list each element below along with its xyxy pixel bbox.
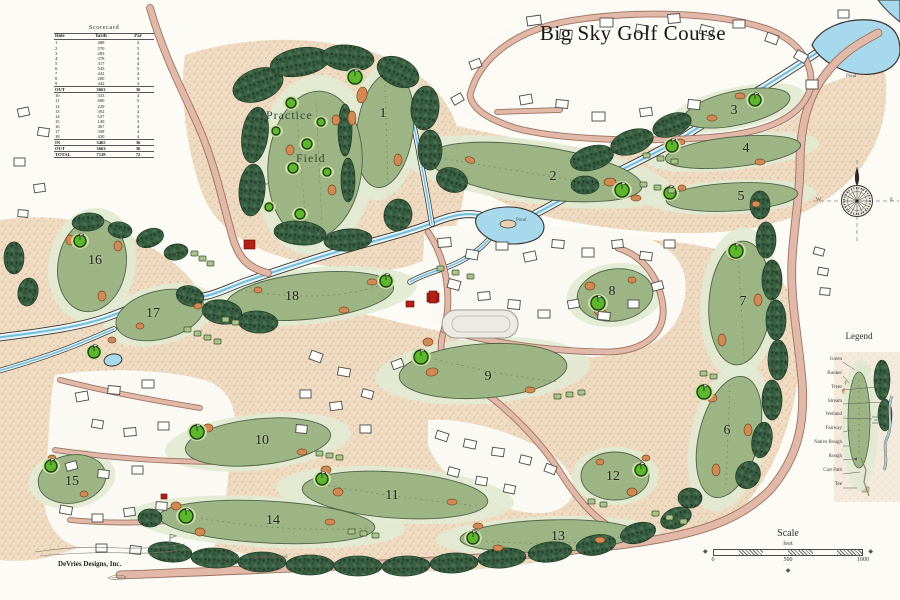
bunker <box>108 337 116 343</box>
scorecard-table: Hole Yards Par 1 488 4 2 570 5 3 283 3 4… <box>54 33 154 158</box>
tee-box <box>214 339 221 344</box>
green <box>317 118 325 126</box>
bunker <box>707 115 717 121</box>
tee-box <box>316 451 323 456</box>
bunker <box>171 502 181 510</box>
house <box>820 288 831 296</box>
tee-box <box>191 251 198 256</box>
house <box>330 401 343 411</box>
compass-east-label: E <box>890 197 893 203</box>
legend-item-label: Trees <box>756 385 842 399</box>
tee-box <box>194 331 201 336</box>
bunker <box>195 528 205 536</box>
house <box>33 183 45 192</box>
tee-box <box>207 261 214 266</box>
scorecard-row: TOTAL 7128 72 <box>54 152 154 158</box>
bunker <box>339 307 349 313</box>
golf-course-map-page: Big Sky Golf Course Scorecard Hole Yards… <box>0 0 900 600</box>
house <box>360 425 371 433</box>
house <box>300 390 311 398</box>
house <box>158 422 169 430</box>
tee-box <box>326 453 333 458</box>
legend-items: Green Bunker Trees Stream Wetland Fairwa… <box>756 357 842 495</box>
tee-box <box>452 270 459 275</box>
bunker <box>752 201 760 207</box>
house <box>132 466 143 474</box>
tee-box <box>566 392 573 397</box>
pond-label-top-right: Pond <box>846 74 856 79</box>
house <box>552 239 565 248</box>
pond-center-island <box>500 220 516 228</box>
bunker <box>194 303 202 309</box>
tee-box <box>467 274 474 279</box>
scale-ornament-icon: ◆ <box>700 567 876 574</box>
clubhouse-building <box>406 301 414 307</box>
house <box>14 158 25 166</box>
house <box>519 94 532 105</box>
legend-item-label: Rough <box>756 454 842 468</box>
tree-cluster <box>341 158 355 202</box>
house <box>75 391 88 402</box>
scale-finial-left-icon: ◆ <box>703 549 708 556</box>
tee-box <box>336 455 343 460</box>
house <box>556 99 569 108</box>
green <box>302 139 312 149</box>
bunker <box>328 185 336 195</box>
house <box>582 248 594 257</box>
scale-tick-label: 500 <box>784 557 793 563</box>
house <box>640 107 653 117</box>
legend-item-label: Native Rough <box>756 440 842 454</box>
tree-cluster <box>4 242 24 274</box>
house <box>91 419 103 429</box>
house <box>337 367 350 377</box>
house <box>503 484 515 494</box>
house <box>664 240 675 248</box>
bunker <box>394 154 402 166</box>
bunker <box>367 279 377 285</box>
house <box>98 470 110 479</box>
house <box>123 507 135 516</box>
bunker <box>493 545 503 551</box>
house <box>156 502 168 511</box>
green <box>323 168 331 176</box>
tee-box <box>204 335 211 340</box>
bunker <box>525 387 535 393</box>
tee-box <box>372 533 379 538</box>
house <box>508 299 521 309</box>
tree-cluster <box>766 300 786 340</box>
house <box>296 425 308 434</box>
house <box>475 476 487 486</box>
house <box>37 127 49 136</box>
hole-number: 6 <box>724 423 731 439</box>
legend-title: Legend <box>826 331 892 341</box>
tee-box <box>640 182 647 187</box>
bunker <box>332 115 340 125</box>
house <box>108 385 121 394</box>
hole-number: 3 <box>731 103 738 119</box>
practice-field-label-2: Field <box>296 151 326 166</box>
house <box>538 310 550 318</box>
tree-cluster <box>334 556 382 576</box>
clubhouse-building <box>429 291 437 303</box>
bunker <box>447 499 457 505</box>
house <box>628 300 639 308</box>
scale-bar: Scale feet ◆ ◆ 0 500 1000 ◆ <box>700 528 876 574</box>
designer-credit: DeVries Designs, Inc. <box>58 560 121 568</box>
bunker <box>254 287 262 293</box>
legend-item-label: Stream <box>756 399 842 413</box>
hole-number: 14 <box>266 513 280 529</box>
house <box>612 239 624 248</box>
tree-cluster <box>678 488 702 508</box>
hole-number: 9 <box>485 369 492 385</box>
house <box>142 380 154 388</box>
hole-number: 7 <box>740 294 747 310</box>
hole-number: 11 <box>385 488 398 504</box>
practice-field-label-1: Practice <box>266 108 313 123</box>
house <box>813 247 824 256</box>
bunker <box>136 323 144 329</box>
bunker <box>628 277 636 283</box>
house <box>598 311 611 320</box>
short-game-area-label: Short Game Area <box>236 181 280 191</box>
tee-box <box>578 390 585 395</box>
bunker <box>333 488 343 496</box>
legend-art <box>834 352 900 502</box>
green <box>295 209 305 219</box>
scorecard: Scorecard Hole Yards Par 1 488 4 2 570 5… <box>54 24 154 158</box>
house <box>18 210 29 218</box>
bunker <box>744 424 752 436</box>
tee-box <box>437 266 444 271</box>
bunker <box>631 195 641 201</box>
compass-west-label: W <box>816 197 821 203</box>
parking-area <box>442 310 518 338</box>
clubhouse-building <box>161 494 167 499</box>
bunker <box>297 449 307 455</box>
house <box>567 299 579 309</box>
tee-box <box>184 327 191 332</box>
scale-finial-right-icon: ◆ <box>868 549 873 556</box>
scale-unit: feet <box>700 540 876 547</box>
bunker <box>678 185 686 191</box>
bunker <box>754 294 762 306</box>
bunker <box>286 145 294 155</box>
bunker <box>423 338 433 346</box>
hole-number: 2 <box>550 169 557 185</box>
house <box>124 427 137 436</box>
green <box>265 203 273 211</box>
scale-title: Scale <box>700 528 876 539</box>
house <box>492 447 505 457</box>
tee-box <box>199 256 206 261</box>
hole-number: 13 <box>551 529 565 545</box>
house <box>817 267 828 276</box>
tee-box <box>360 531 367 536</box>
tee-box <box>232 320 239 325</box>
house <box>59 505 72 515</box>
bunker <box>473 523 483 529</box>
scale-tick-label: 0 <box>712 557 715 563</box>
house <box>96 544 107 552</box>
bunker <box>735 93 745 99</box>
pond-top-right-arm <box>878 0 900 22</box>
legend-item-label: Bunker <box>756 371 842 385</box>
house <box>465 249 478 260</box>
green <box>272 127 280 135</box>
house <box>496 242 508 250</box>
legend-item-label: Green <box>756 357 842 371</box>
tee-box <box>643 153 650 158</box>
scale-bar-segments <box>713 549 863 556</box>
hole-number: 15 <box>65 474 79 490</box>
bunker <box>325 519 335 525</box>
hole-number: 16 <box>88 253 102 269</box>
house <box>838 10 849 18</box>
house <box>688 99 701 109</box>
house <box>438 237 452 247</box>
hole-number: 17 <box>146 306 160 322</box>
bunker <box>596 459 604 465</box>
bunker <box>114 241 122 251</box>
legend-item-label: Fairway <box>756 426 842 440</box>
hole-number: 8 <box>609 284 616 300</box>
house <box>17 107 29 117</box>
tee-box <box>654 185 661 190</box>
road <box>497 110 560 112</box>
scale-tick-label: 1000 <box>857 557 869 563</box>
pond-label-center: Pond <box>516 218 526 223</box>
tee-box <box>348 529 355 534</box>
clubhouse-building <box>244 240 255 249</box>
house <box>592 112 605 121</box>
tee-box <box>657 156 664 161</box>
tee-box <box>600 502 607 507</box>
tee-box <box>668 188 675 193</box>
tee-box <box>671 159 678 164</box>
tree-cluster <box>756 222 776 258</box>
hole-number: 1 <box>380 106 387 122</box>
hole-number: 5 <box>738 189 745 205</box>
bunker <box>718 334 726 346</box>
hole-number: 4 <box>743 141 750 157</box>
tee-box <box>680 519 687 524</box>
bunker <box>712 464 720 476</box>
bunker <box>80 491 88 497</box>
tree-cluster <box>762 260 782 300</box>
scale-ticks: 0 500 1000 <box>713 557 863 565</box>
map-title: Big Sky Golf Course <box>518 21 748 46</box>
hole-number: 18 <box>285 289 299 305</box>
tee-box <box>700 371 707 376</box>
tee-box <box>554 394 561 399</box>
legend-item-label: Cart Path <box>756 468 842 482</box>
green <box>286 98 296 108</box>
house <box>523 251 537 262</box>
tree-cluster <box>571 176 599 194</box>
tee-box <box>222 317 229 322</box>
bunker <box>595 537 605 543</box>
legend-item-label: Wetland <box>756 412 842 426</box>
tee-box <box>652 511 659 516</box>
tee-box <box>666 515 673 520</box>
house <box>92 514 103 522</box>
house <box>640 251 653 261</box>
legend-item-label: Tee <box>756 482 842 496</box>
scorecard-title: Scorecard <box>54 24 154 31</box>
tee-box <box>588 499 595 504</box>
bunker <box>585 282 595 290</box>
bunker <box>755 159 765 165</box>
house <box>806 80 818 89</box>
tree-cluster <box>418 130 442 170</box>
hole-number: 12 <box>606 469 620 485</box>
hole-number: 10 <box>255 433 269 449</box>
bunker <box>642 455 650 461</box>
bunker <box>98 291 106 301</box>
bunker <box>348 111 356 125</box>
tee-box <box>710 374 717 379</box>
bunker <box>627 488 637 496</box>
house <box>478 291 491 300</box>
tree-cluster <box>138 509 162 527</box>
